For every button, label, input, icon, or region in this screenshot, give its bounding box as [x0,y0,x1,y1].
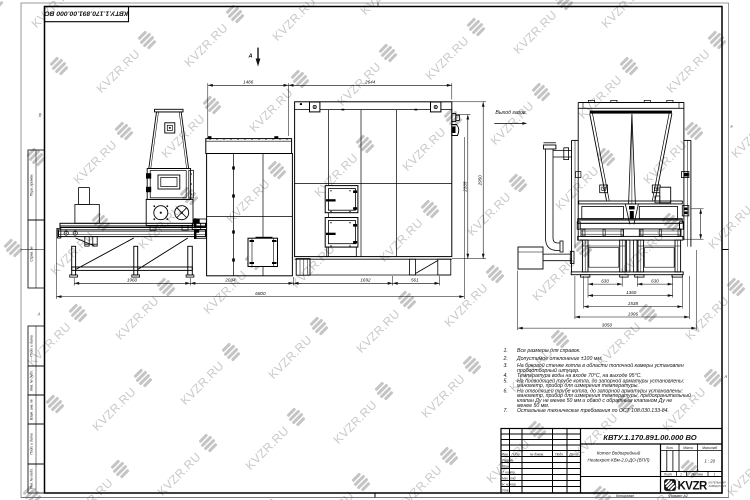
svg-text:1960: 1960 [127,277,138,282]
svg-text:Подп. и дата: Подп. и дата [30,335,34,356]
svg-text:Т. контр.: Т. контр. [502,470,516,474]
svg-text:Остальные технические требован: Остальные технические требования по ОСТ … [517,408,669,414]
svg-text:561: 561 [411,277,419,282]
svg-text:1692: 1692 [360,277,371,282]
svg-text:2.: 2. [503,356,508,362]
svg-text:1.: 1. [504,348,508,354]
svg-text:Масштаб: Масштаб [702,446,717,450]
svg-text:Нач. отд.: Нач. отд. [502,476,516,480]
svg-text:Инв. № подл.: Инв. № подл. [30,468,34,489]
svg-text:А: А [247,54,252,60]
svg-text:2644: 2644 [364,80,376,85]
svg-text:1360: 1360 [626,290,637,295]
svg-text:6.: 6. [504,388,508,394]
svg-text:1538: 1538 [628,301,639,306]
svg-text:Пров.: Пров. [502,464,511,468]
svg-text:3.: 3. [504,363,508,369]
svg-text:№ докум.: № докум. [530,452,544,456]
svg-text:Допустимое отклонение ±100 мм.: Допустимое отклонение ±100 мм. [516,356,602,362]
svg-text:1: 1 [714,473,716,477]
svg-text:2034: 2034 [224,277,236,282]
svg-text:Взам. инв. №: Взам. инв. № [30,399,34,420]
svg-text:А: А [723,374,727,379]
svg-text:Все размеры для справок.: Все размеры для справок. [517,348,581,354]
svg-text:Перв. примен.: Перв. примен. [30,174,34,197]
svg-text:Копировал: Копировал [616,494,634,498]
svg-text:КОТЕЛЬНЫЙ: КОТЕЛЬНЫЙ [709,480,726,484]
svg-text:7.: 7. [504,408,508,414]
svg-text:Масса: Масса [683,446,693,450]
svg-text:Дата: Дата [568,452,578,456]
svg-text:Н. контр.: Н. контр. [502,482,516,486]
svg-text:1906: 1906 [628,311,639,316]
svg-text:В: В [39,113,42,118]
svg-text:630: 630 [651,279,659,284]
svg-text:Подп.: Подп. [555,452,564,456]
svg-text:630: 630 [601,279,609,284]
svg-text:Лист: Лист [510,452,520,456]
svg-text:Лит.: Лит. [665,446,674,450]
svg-text:Heatexpert-КВм-2,0-ДО-(ВПЛ): Heatexpert-КВм-2,0-ДО-(ВПЛ) [587,458,650,463]
svg-text:Формат А2: Формат А2 [668,494,688,498]
svg-text:2335: 2335 [462,181,467,193]
svg-text:Справ. №: Справ. № [30,246,34,262]
svg-text:КВТУ.1.170.891.00.000 ВО: КВТУ.1.170.891.00.000 ВО [44,10,128,17]
svg-text:5.: 5. [504,378,508,384]
svg-text:в: в [730,124,732,129]
svg-text:Выход газов: Выход газов [495,110,526,116]
svg-text:3050: 3050 [602,323,613,328]
svg-text:1 : 20: 1 : 20 [704,459,715,464]
svg-text:Листов: Листов [690,473,703,477]
svg-text:Изм.: Изм. [502,452,509,456]
svg-text:А: А [37,312,41,317]
svg-text:2950: 2950 [478,175,483,187]
svg-text:KVZR: KVZR [678,480,709,492]
svg-text:ЗАВОД РЭМЗ: ЗАВОД РЭМЗ [709,484,727,488]
svg-text:Лист: Лист [663,473,673,477]
svg-text:1: 1 [680,473,682,477]
svg-text:Утв.: Утв. [502,488,509,492]
svg-text:6800: 6800 [255,291,266,296]
svg-text:Подп. и дата: Подп. и дата [30,433,34,454]
svg-text:1486: 1486 [243,80,254,85]
svg-text:Разраб.: Разраб. [502,458,514,462]
svg-text:Котел Водогрейный: Котел Водогрейный [597,450,641,456]
svg-text:КВТУ.1.170.891.00.000 ВО: КВТУ.1.170.891.00.000 ВО [603,433,697,442]
svg-text:Инв. № дубл.: Инв. № дубл. [30,370,34,391]
